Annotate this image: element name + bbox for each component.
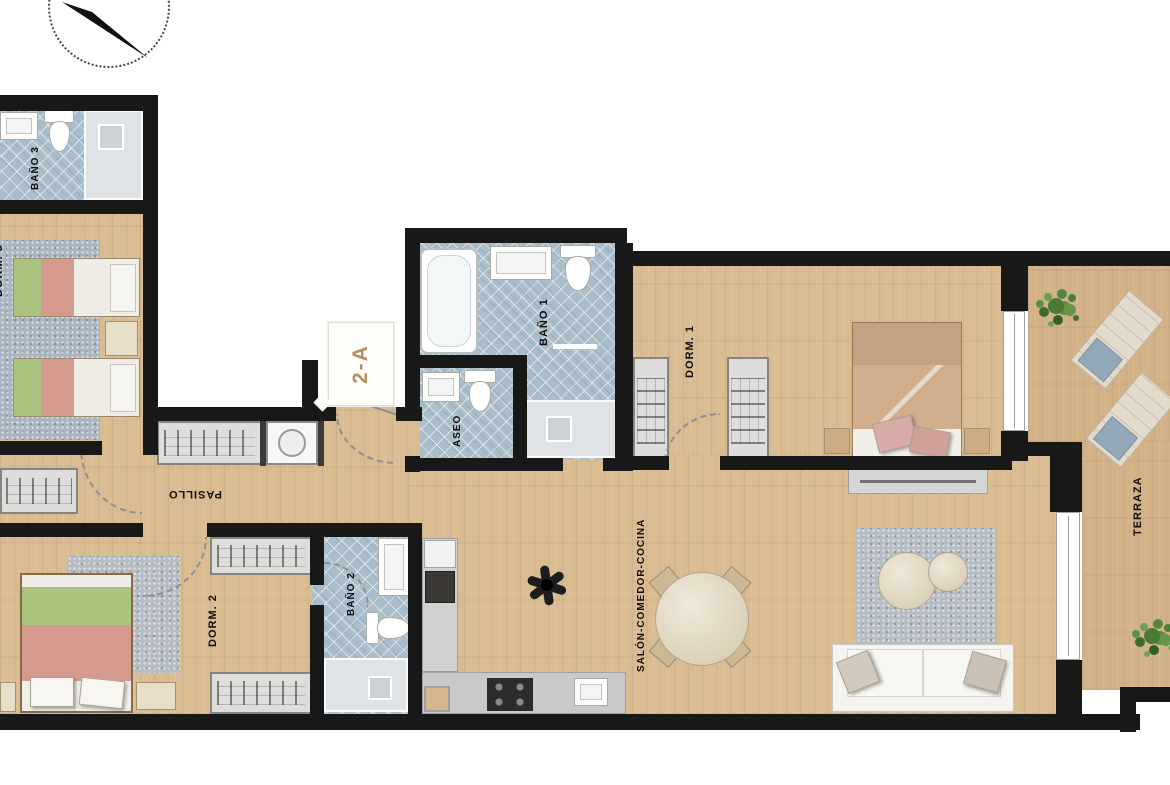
hallway-closet-west bbox=[0, 468, 78, 514]
dorm1-window bbox=[1003, 311, 1025, 431]
wall bbox=[0, 441, 102, 455]
coffee-table-small bbox=[928, 552, 968, 592]
bed-pillow bbox=[110, 264, 136, 312]
wall bbox=[408, 523, 422, 714]
wall bbox=[1050, 442, 1082, 512]
bano1-bathtub-icon bbox=[420, 248, 478, 354]
bano1-shower-tray bbox=[524, 400, 620, 458]
dorm1-wardrobe-left bbox=[633, 357, 669, 465]
wall bbox=[513, 355, 527, 470]
wall bbox=[405, 228, 627, 243]
wall bbox=[143, 95, 158, 455]
room-label-pasillo: PASILLO bbox=[168, 488, 222, 500]
room-label-dorm2: DORM. 2 bbox=[205, 586, 221, 656]
bed-blanket-green bbox=[22, 587, 131, 625]
wall bbox=[0, 523, 143, 537]
wall bbox=[720, 456, 1012, 470]
hallway-closet bbox=[157, 421, 262, 465]
salon-sideboard bbox=[848, 468, 988, 494]
bed-pillow-2 bbox=[79, 677, 126, 709]
bano1-toilet-icon bbox=[560, 245, 596, 291]
bano3-toilet-icon bbox=[44, 110, 74, 152]
room-label-dorm3: DORM. 3 bbox=[0, 232, 7, 310]
aseo-toilet-icon bbox=[464, 370, 496, 412]
dining-table bbox=[655, 572, 749, 666]
bed-sheet-top bbox=[22, 575, 131, 587]
bed-pillow bbox=[110, 364, 136, 412]
sofa bbox=[832, 644, 1014, 712]
coffee-table-large bbox=[878, 552, 936, 610]
wall bbox=[615, 243, 633, 471]
bano3-sink-icon bbox=[0, 112, 38, 140]
terraza-plant-bottom-icon bbox=[1144, 628, 1160, 644]
dorm3-nightstand bbox=[105, 321, 138, 356]
room-label-bano1: BAÑO 1 bbox=[536, 290, 552, 354]
bed-duvet-top bbox=[853, 323, 961, 365]
bed-blanket-green bbox=[14, 359, 41, 416]
room-label-bano2: BAÑO 2 bbox=[344, 562, 360, 626]
dorm2-double-bed bbox=[20, 573, 133, 713]
dorm2-wardrobe-bottom bbox=[210, 672, 312, 714]
wall bbox=[310, 605, 324, 714]
bed-pillow-1 bbox=[30, 677, 74, 707]
oven-icon bbox=[425, 571, 455, 603]
wall bbox=[0, 714, 1140, 730]
dorm2-nightstand-left bbox=[0, 682, 16, 712]
wall bbox=[310, 523, 324, 585]
wall bbox=[1001, 251, 1028, 311]
terraza-floor-lower bbox=[1082, 442, 1170, 690]
kitchen-sink-icon bbox=[574, 678, 608, 706]
dorm3-single-bed-1 bbox=[13, 258, 140, 317]
wall bbox=[0, 95, 158, 111]
room-label-salon: SALÓN-COMEDOR-COCINA bbox=[634, 486, 650, 704]
bano2-sink-icon bbox=[378, 538, 410, 596]
dorm1-nightstand-left bbox=[824, 428, 850, 454]
room-label-bano3: BAÑO 3 bbox=[28, 138, 44, 198]
bano1-shower-drain-icon bbox=[546, 416, 572, 442]
bano3-shower-drain-icon bbox=[98, 124, 124, 150]
wall bbox=[405, 228, 420, 414]
north-arrow-icon bbox=[58, 0, 152, 64]
fridge-icon bbox=[424, 540, 456, 568]
aseo-sink-icon bbox=[422, 372, 460, 402]
wall bbox=[1120, 687, 1136, 732]
washer-divider-left bbox=[260, 418, 266, 466]
dorm2-wardrobe-top bbox=[210, 537, 312, 575]
washing-machine-icon bbox=[266, 421, 318, 465]
unit-label: 2-A bbox=[329, 323, 393, 405]
washer-divider-right bbox=[318, 418, 324, 466]
apartment-floor-plan: 2-A BAÑO 3 DORM. 3 PASILLO ASEO BAÑO 1 D… bbox=[0, 0, 1170, 785]
dorm3-single-bed-2 bbox=[13, 358, 140, 417]
cooktop-icon bbox=[487, 678, 533, 711]
wall bbox=[0, 200, 143, 214]
bed-blanket-green bbox=[14, 259, 41, 316]
bed-blanket-pink bbox=[41, 259, 74, 316]
room-label-terraza: TERRAZA bbox=[1130, 460, 1146, 552]
dorm2-nightstand-right bbox=[136, 682, 176, 710]
bano1-shelf bbox=[553, 344, 597, 349]
room-label-dorm1: DORM. 1 bbox=[682, 314, 698, 390]
terraza-sliding-door bbox=[1056, 512, 1080, 660]
bano2-shower-tray bbox=[324, 658, 408, 712]
wall bbox=[405, 355, 527, 368]
wall bbox=[627, 456, 669, 470]
bano2-toilet-icon bbox=[366, 612, 410, 644]
terraza-plant-top-icon bbox=[1048, 298, 1064, 314]
unit-label-box: 2-A bbox=[328, 322, 394, 406]
dorm1-double-bed bbox=[852, 322, 962, 456]
room-label-aseo: ASEO bbox=[450, 404, 466, 458]
bed-blanket-pink bbox=[41, 359, 74, 416]
dorm1-wardrobe-right bbox=[727, 357, 769, 465]
bano1-sink-icon bbox=[490, 246, 552, 280]
wall bbox=[627, 251, 1170, 266]
dorm1-nightstand-right bbox=[964, 428, 990, 454]
kitchen-stool bbox=[424, 686, 450, 712]
bano2-shower-drain-icon bbox=[368, 676, 392, 700]
wall bbox=[405, 458, 563, 471]
